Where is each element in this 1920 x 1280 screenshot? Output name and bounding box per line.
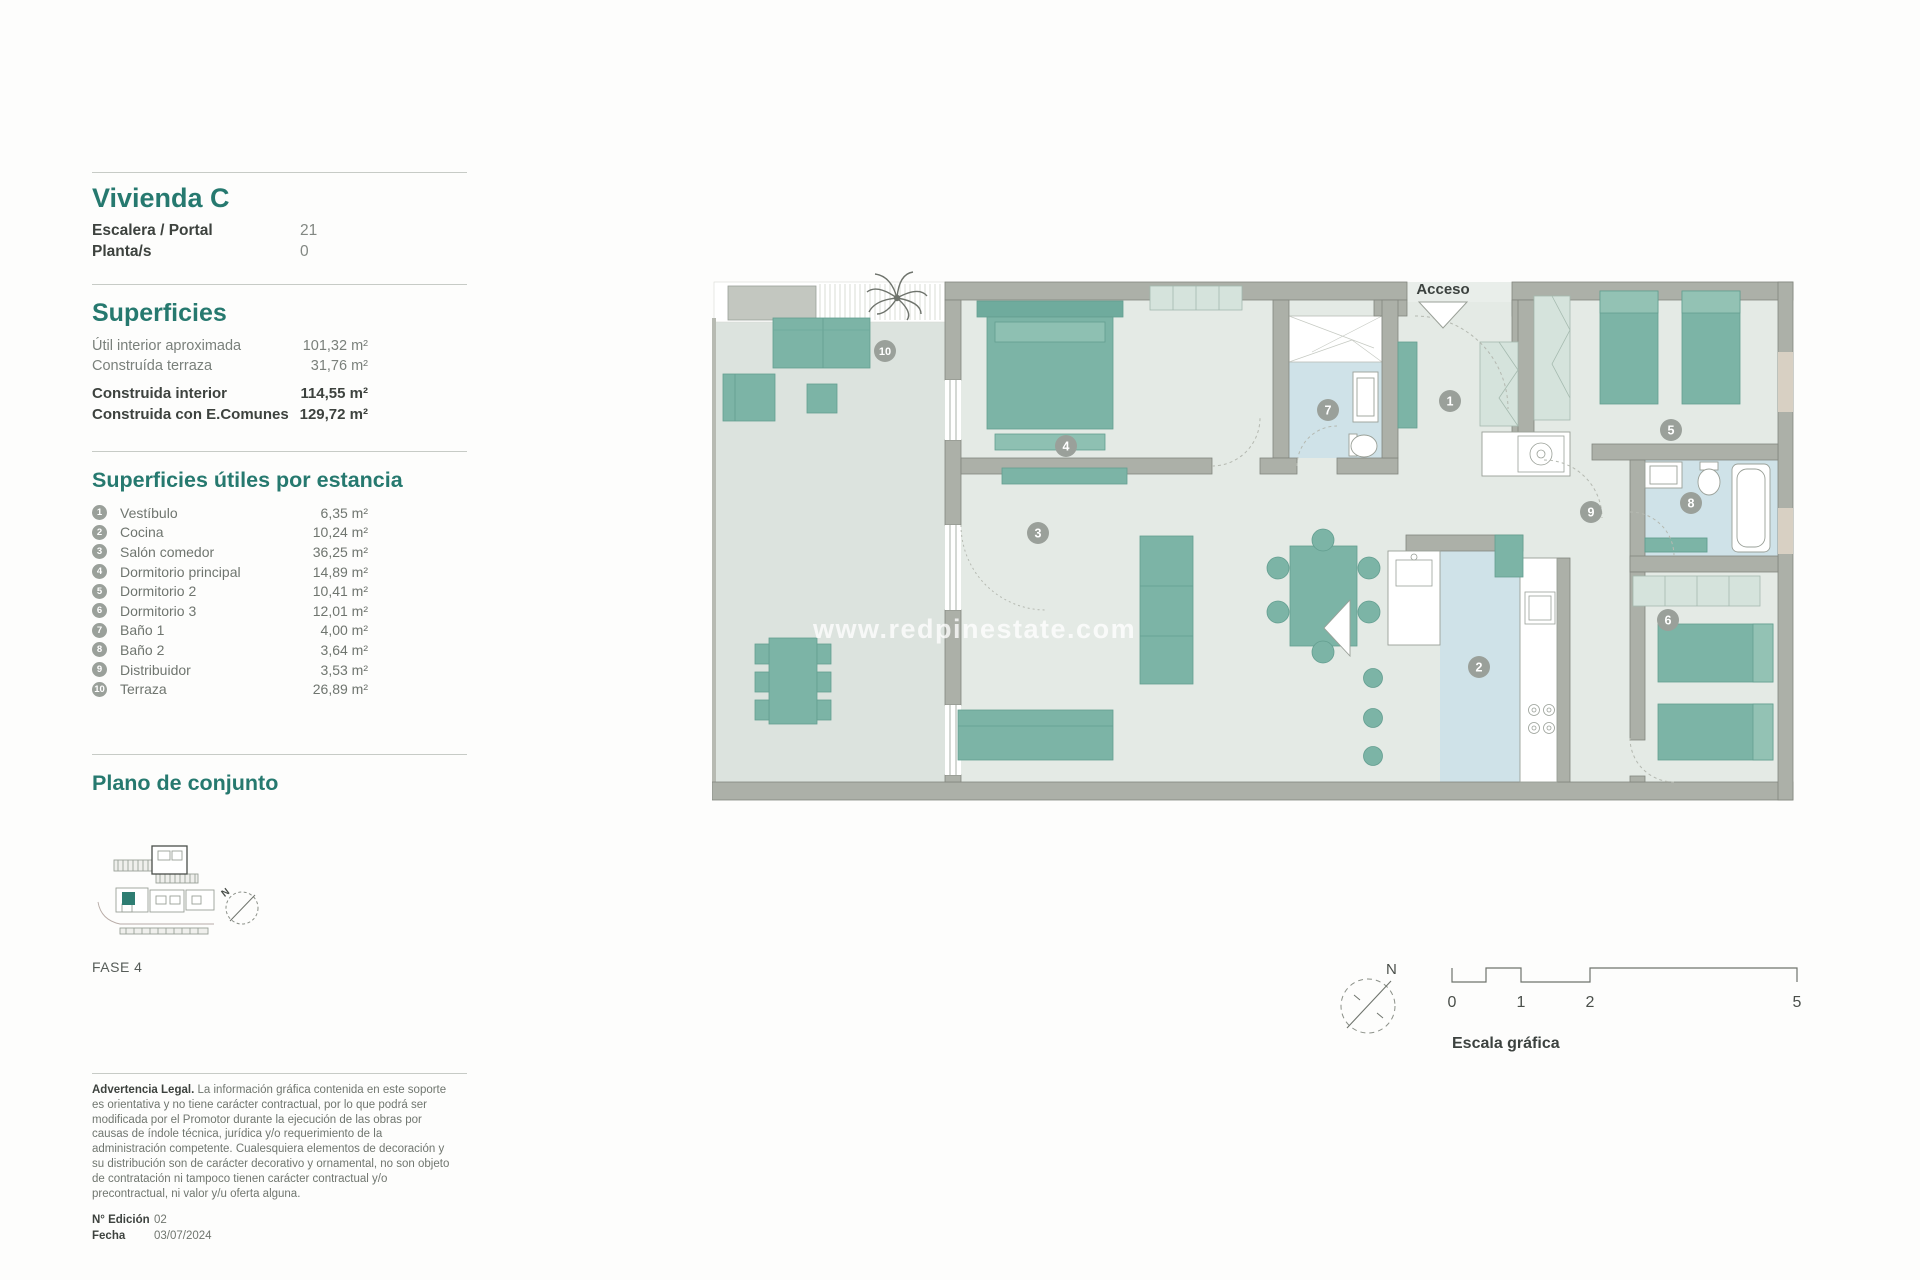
room-area: 3,64 m²	[321, 642, 368, 658]
list-item: 7 Baño 1 4,00 m²	[92, 621, 368, 641]
floorplan-sheet: Vivienda C Escalera / Portal 21 Planta/s…	[0, 0, 1920, 1280]
superficie-row: Construida con E.Comunes 129,72 m²	[92, 404, 368, 425]
detail-label: Escalera / Portal	[92, 220, 300, 241]
room-label: Baño 2	[120, 642, 164, 658]
room-number-badge: 4	[92, 564, 107, 579]
list-item: 4 Dormitorio principal 14,89 m²	[92, 562, 368, 582]
room-area: 14,89 m²	[313, 564, 368, 580]
detail-value: 0	[300, 241, 309, 262]
north-compass-icon: N	[1341, 961, 1397, 1033]
unit-title: Vivienda C	[92, 183, 470, 214]
edition-block: N° Edición 02 Fecha 03/07/2024	[92, 1213, 470, 1244]
date-label: Fecha	[92, 1229, 154, 1245]
superficie-value: 101,32 m²	[303, 336, 368, 356]
room-label: Dormitorio 3	[120, 603, 196, 619]
divider	[92, 754, 467, 755]
divider	[92, 172, 467, 173]
divider	[92, 284, 467, 285]
room-label: Vestíbulo	[120, 505, 178, 521]
room-area: 6,35 m²	[321, 505, 368, 521]
svg-text:6: 6	[1665, 614, 1672, 628]
room-label: Dormitorio principal	[120, 564, 241, 580]
bath1-fixtures	[1349, 372, 1378, 457]
detail-label: Planta/s	[92, 241, 300, 262]
room-number-badge: 9	[92, 662, 107, 677]
estancias-heading: Superficies útiles por estancia	[92, 468, 470, 493]
superficie-label: Construida con E.Comunes	[92, 404, 289, 425]
room-area: 4,00 m²	[321, 622, 368, 638]
divider	[92, 1073, 467, 1074]
window-threshold	[1778, 352, 1793, 412]
room-number-badge: 8	[92, 642, 107, 657]
room-number-badge: 5	[92, 584, 107, 599]
room-number-badge: 3	[92, 544, 107, 559]
watermark: www.redpinestate.com	[812, 614, 1136, 644]
window-threshold	[1778, 508, 1793, 554]
room-label: Salón comedor	[120, 544, 214, 560]
svg-text:9: 9	[1588, 506, 1595, 520]
room-label: Baño 1	[120, 622, 164, 638]
room-area: 10,41 m²	[313, 583, 368, 599]
highlighted-unit	[122, 892, 135, 905]
superficie-row: Útil interior aproximada 101,32 m²	[92, 336, 368, 356]
edition-row: Fecha 03/07/2024	[92, 1229, 470, 1245]
list-item: 5 Dormitorio 2 10,41 m²	[92, 581, 368, 601]
legal-body: La información gráfica contenida en este…	[92, 1084, 449, 1200]
fase-label: FASE 4	[92, 959, 470, 975]
svg-text:4: 4	[1063, 440, 1070, 454]
list-item: 9 Distribuidor 3,53 m²	[92, 660, 368, 680]
svg-text:5: 5	[1668, 424, 1675, 438]
room-label: Cocina	[120, 524, 164, 540]
floor-plan: 1 2 3 4 5 6 7 8 9 10 Acceso www.redpines…	[712, 270, 1802, 815]
superficie-row: Construida interior 114,55 m²	[92, 383, 368, 404]
edition-row: N° Edición 02	[92, 1213, 470, 1229]
conjunto-heading: Plano de conjunto	[92, 771, 470, 796]
list-item: 3 Salón comedor 36,25 m²	[92, 542, 368, 562]
room-area: 10,24 m²	[313, 524, 368, 540]
list-item: 10 Terraza 26,89 m²	[92, 679, 368, 699]
site-compass-icon: N	[220, 886, 258, 924]
room-label: Dormitorio 2	[120, 583, 196, 599]
info-panel: Vivienda C Escalera / Portal 21 Planta/s…	[92, 140, 470, 1244]
scale-and-compass: N 0 1 2 5 Escala gráfica	[1330, 958, 1820, 1078]
detail-row: Planta/s 0	[92, 241, 470, 262]
unit-details: Escalera / Portal 21 Planta/s 0	[92, 220, 470, 262]
room-number-badge: 10	[92, 682, 107, 697]
room-area: 36,25 m²	[313, 544, 368, 560]
svg-text:3: 3	[1035, 527, 1042, 541]
room-label: Distribuidor	[120, 662, 191, 678]
superficies-heading: Superficies	[92, 299, 470, 328]
list-item: 8 Baño 2 3,64 m²	[92, 640, 368, 660]
scale-tick-0: 0	[1448, 994, 1457, 1011]
room-number-badge: 1	[92, 505, 107, 520]
scale-label: Escala gráfica	[1452, 1035, 1560, 1052]
detail-value: 21	[300, 220, 317, 241]
superficie-label: Construida interior	[92, 383, 227, 404]
graphic-scale: 0 1 2 5 Escala gráfica	[1448, 968, 1802, 1052]
room-area: 12,01 m²	[313, 603, 368, 619]
edition-label: N° Edición	[92, 1213, 154, 1229]
superficie-value: 129,72 m²	[300, 404, 368, 425]
svg-text:1: 1	[1447, 395, 1454, 409]
scale-tick-1: 1	[1517, 994, 1526, 1011]
svg-text:7: 7	[1325, 404, 1332, 418]
legal-disclaimer: Advertencia Legal. La información gráfic…	[92, 1083, 450, 1201]
room-number-badge: 6	[92, 603, 107, 618]
list-item: 6 Dormitorio 3 12,01 m²	[92, 601, 368, 621]
scale-tick-5: 5	[1793, 994, 1802, 1011]
superficies-table: Útil interior aproximada 101,32 m² Const…	[92, 336, 470, 425]
svg-text:8: 8	[1688, 497, 1695, 511]
room-label: Terraza	[120, 681, 167, 697]
legal-title: Advertencia Legal.	[92, 1084, 194, 1096]
superficie-row: Construída terraza 31,76 m²	[92, 356, 368, 376]
estancias-list: 1 Vestíbulo 6,35 m² 2 Cocina 10,24 m² 3 …	[92, 503, 470, 699]
access-label: Acceso	[1416, 281, 1469, 298]
superficie-label: Útil interior aproximada	[92, 336, 241, 356]
scale-tick-2: 2	[1586, 994, 1595, 1011]
room-number-badge: 2	[92, 525, 107, 540]
list-item: 1 Vestíbulo 6,35 m²	[92, 503, 368, 523]
divider	[92, 451, 467, 452]
date-value: 03/07/2024	[154, 1229, 212, 1245]
edition-value: 02	[154, 1213, 167, 1229]
detail-row: Escalera / Portal 21	[92, 220, 470, 241]
svg-text:2: 2	[1476, 661, 1483, 675]
site-plan-map: N	[92, 844, 277, 944]
superficie-label: Construída terraza	[92, 356, 212, 376]
superficie-value: 114,55 m²	[300, 383, 368, 404]
svg-text:10: 10	[879, 346, 891, 358]
room-area: 26,89 m²	[313, 681, 368, 697]
bedroom2-furniture	[1534, 291, 1740, 420]
room-area: 3,53 m²	[321, 662, 368, 678]
room-number-badge: 7	[92, 623, 107, 638]
list-item: 2 Cocina 10,24 m²	[92, 523, 368, 543]
north-label: N	[1386, 961, 1397, 978]
superficie-value: 31,76 m²	[311, 356, 368, 376]
